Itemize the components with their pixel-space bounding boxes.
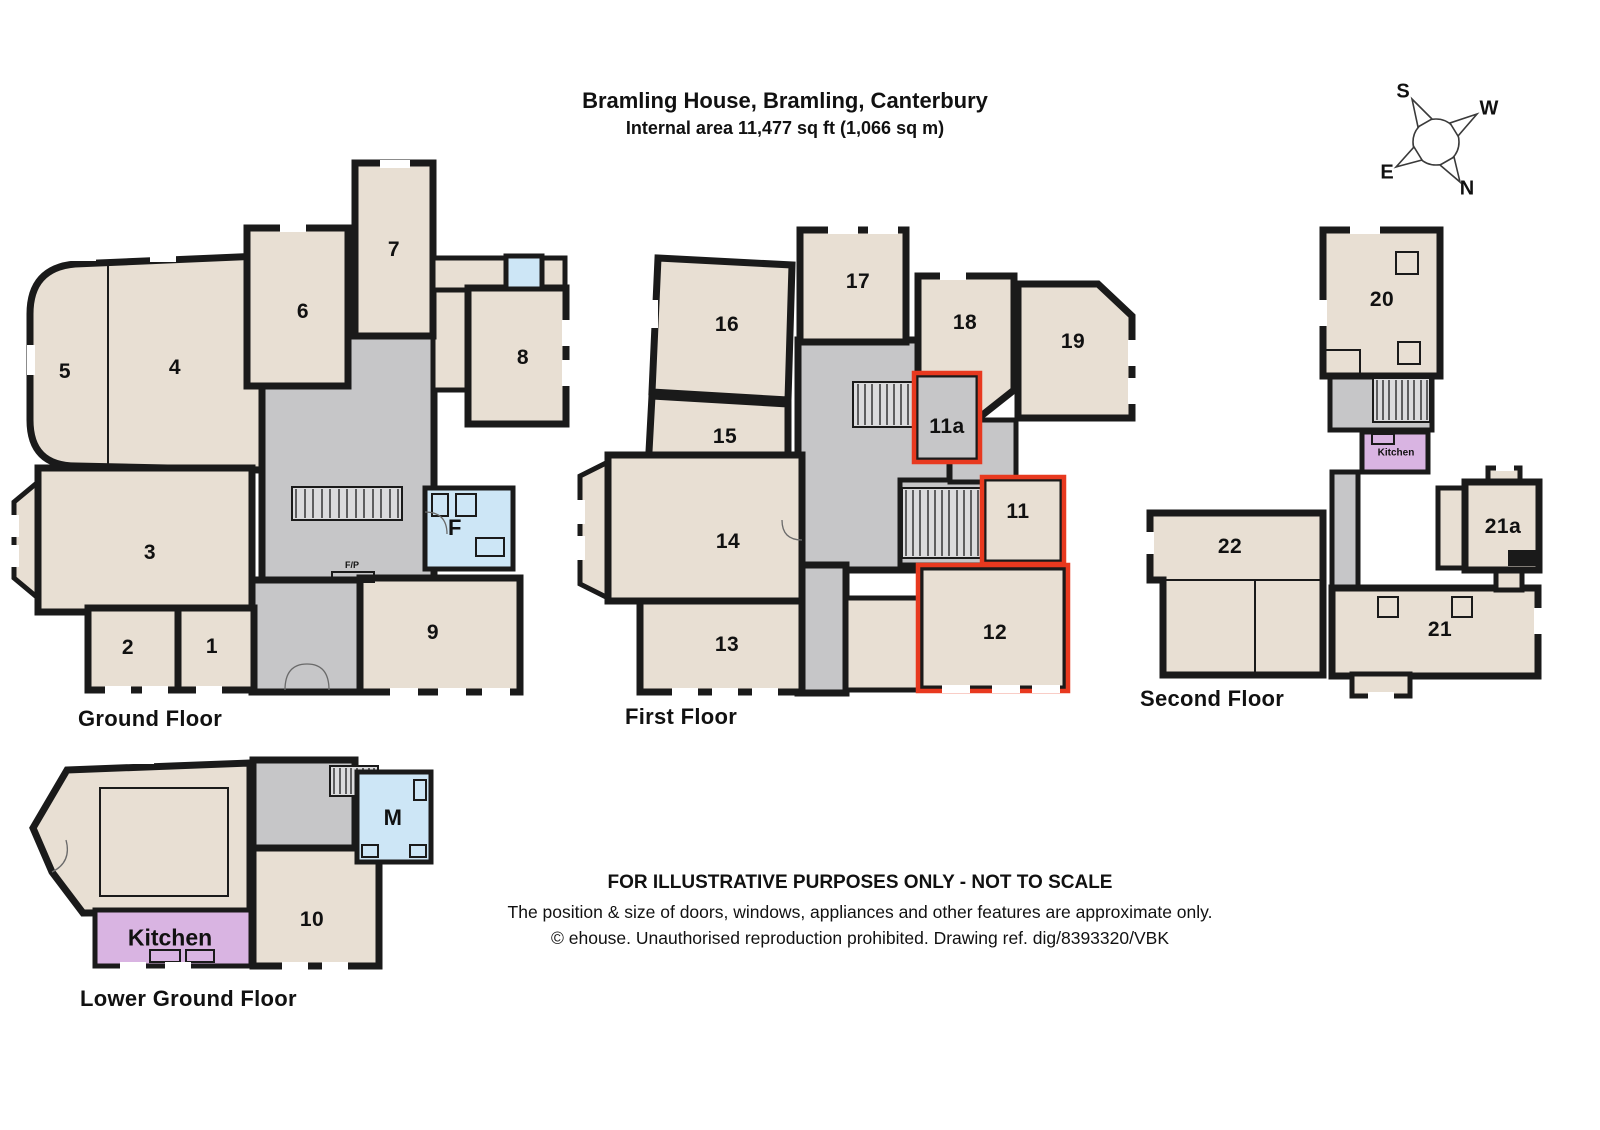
disclaimer-line1: FOR ILLUSTRATIVE PURPOSES ONLY - NOT TO …	[400, 872, 1320, 894]
room-18-label: 18	[953, 311, 977, 335]
disclaimer-line2: The position & size of doors, windows, a…	[400, 902, 1320, 923]
second-floor-kitchen-label: Kitchen	[1378, 448, 1415, 459]
room-10-label: 10	[300, 908, 324, 932]
ground-floor-plan	[11, 160, 570, 696]
room-4-label: 4	[169, 356, 181, 380]
floorplan-page: { "title": { "line1": "Bramling House, B…	[0, 0, 1600, 1130]
room-6-label: 6	[297, 300, 309, 324]
room-16-label: 16	[715, 313, 739, 337]
ground-floor-label: Ground Floor	[78, 706, 222, 732]
room-f-label: F	[448, 515, 462, 541]
room-11a-label: 11a	[929, 415, 964, 439]
second-floor-plan	[1146, 226, 1542, 700]
room-1-label: 1	[206, 635, 218, 659]
page-title: Bramling House, Bramling, Canterbury	[0, 88, 1570, 114]
room-14-label: 14	[716, 530, 740, 554]
compass-west-label: W	[1480, 98, 1499, 121]
room-8-label: 8	[517, 346, 529, 370]
room-11-label: 11	[1006, 500, 1029, 524]
room-9-label: 9	[427, 621, 439, 645]
first-floor-label: First Floor	[625, 704, 737, 730]
compass-south-label: S	[1396, 81, 1409, 104]
room-2-label: 2	[122, 636, 134, 660]
room-17-label: 17	[846, 270, 870, 294]
room-21a-label: 21a	[1485, 515, 1522, 539]
disclaimer: FOR ILLUSTRATIVE PURPOSES ONLY - NOT TO …	[400, 872, 1320, 949]
page-subtitle: Internal area 11,477 sq ft (1,066 sq m)	[0, 118, 1570, 139]
compass-north-label: N	[1460, 178, 1474, 201]
plan-header: Bramling House, Bramling, Canterbury Int…	[0, 88, 1570, 139]
room-22-label: 22	[1218, 535, 1242, 559]
room-13-label: 13	[715, 633, 739, 657]
room-3-label: 3	[144, 541, 156, 565]
lower-kitchen-label: Kitchen	[128, 925, 212, 952]
room-m-label: M	[384, 805, 403, 831]
room-15-label: 15	[713, 425, 737, 449]
lower-ground-floor-label: Lower Ground Floor	[80, 986, 297, 1012]
compass-east-label: E	[1380, 162, 1393, 185]
room-12-label: 12	[983, 621, 1007, 645]
first-floor-plan	[577, 226, 1136, 696]
lower-ground-floor-plan	[33, 757, 431, 970]
room-19-label: 19	[1061, 330, 1085, 354]
second-floor-label: Second Floor	[1140, 686, 1284, 712]
floorplan-canvas	[0, 0, 1600, 1130]
disclaimer-line3: © ehouse. Unauthorised reproduction proh…	[400, 928, 1320, 949]
room-21-label: 21	[1428, 618, 1452, 642]
room-7-label: 7	[388, 238, 400, 262]
room-5-label: 5	[59, 360, 71, 384]
room-20-label: 20	[1370, 288, 1394, 312]
fireplace-label: F/P	[345, 560, 359, 570]
